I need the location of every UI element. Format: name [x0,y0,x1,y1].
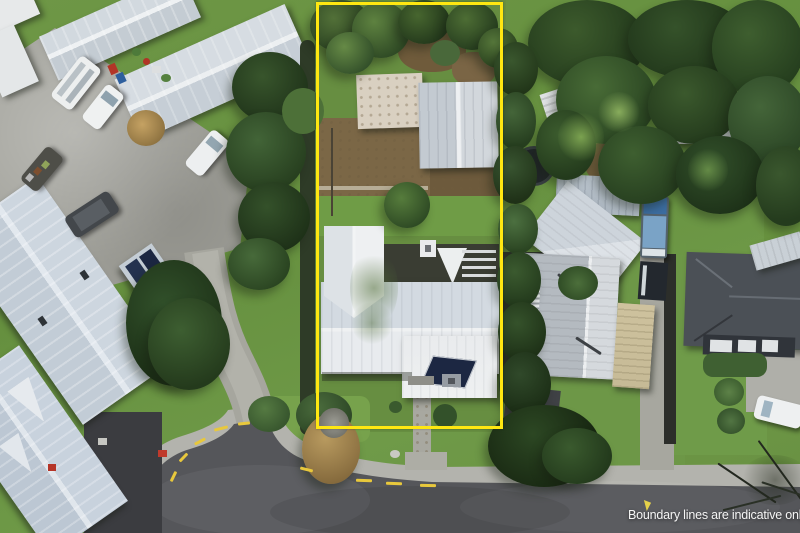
windshield [761,400,774,418]
red-marker [48,464,56,471]
boat-trailer [638,261,669,301]
clutter [41,160,50,169]
window [762,340,778,353]
ridge [729,295,800,300]
road-marking [356,479,372,483]
garden-clutter [143,58,150,65]
clutter [98,438,107,445]
truck-body [642,216,666,249]
woodpile [127,110,165,146]
garden-clutter [152,66,161,73]
tree-over-road [542,428,612,484]
palm-garden [714,378,744,406]
subject-property-boundary [316,2,503,429]
window [738,340,756,353]
shrub [558,266,598,300]
tree [598,126,686,204]
palm-tree [688,148,728,192]
palm-tree [598,92,640,132]
aerial-scene: Boundary lines are indicative only [0,0,800,533]
garden-clutter [132,48,141,56]
carport-roof [612,303,655,389]
path-apron [405,452,447,470]
garden-clutter [161,74,171,82]
tree [497,252,541,308]
truck-tail [642,249,665,257]
tree [148,298,230,390]
palm-garden [717,408,745,434]
windshield [205,136,223,153]
red-marker [158,450,167,457]
boat-stripe [641,265,647,295]
manhole [390,450,400,458]
windshield [100,90,118,107]
clutter [33,167,42,176]
boundary-disclaimer-text: Boundary lines are indicative only [628,508,800,522]
palm-tree [558,112,604,162]
window [710,340,732,353]
truck-blue [640,196,669,259]
tv-antenna-shadow [575,336,602,355]
clutter [25,173,34,182]
road-marking [420,484,436,487]
shrub [248,396,290,432]
hip-ridge [695,258,732,288]
hedge [703,353,767,377]
tree [498,204,538,254]
road-marking [386,482,402,486]
tree [228,238,290,290]
